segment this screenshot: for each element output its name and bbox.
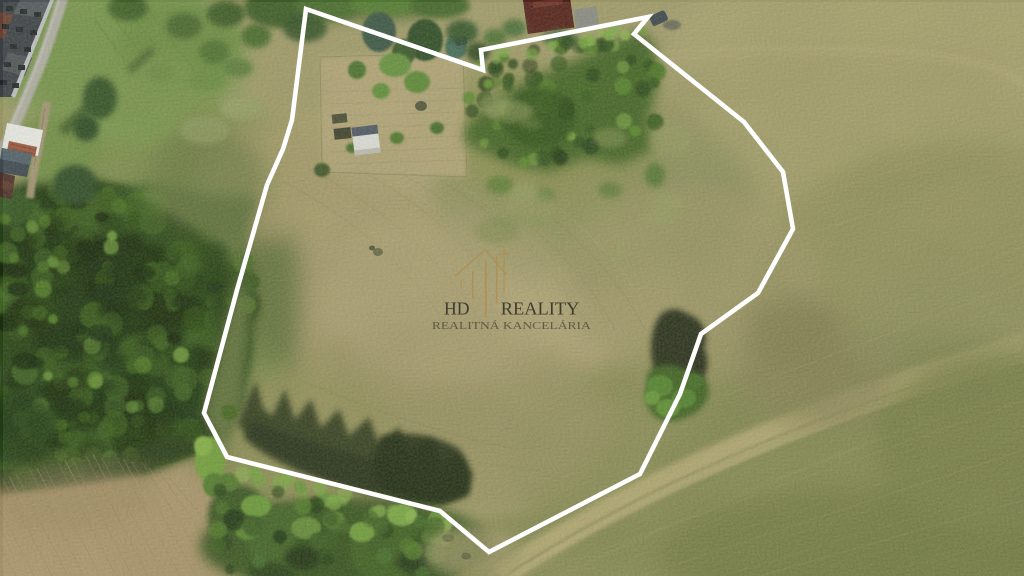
svg-text:HD: HD xyxy=(444,299,470,319)
svg-text:REALITNÁ KANCELÁRIA: REALITNÁ KANCELÁRIA xyxy=(432,320,592,332)
svg-text:REALITY: REALITY xyxy=(501,299,580,319)
